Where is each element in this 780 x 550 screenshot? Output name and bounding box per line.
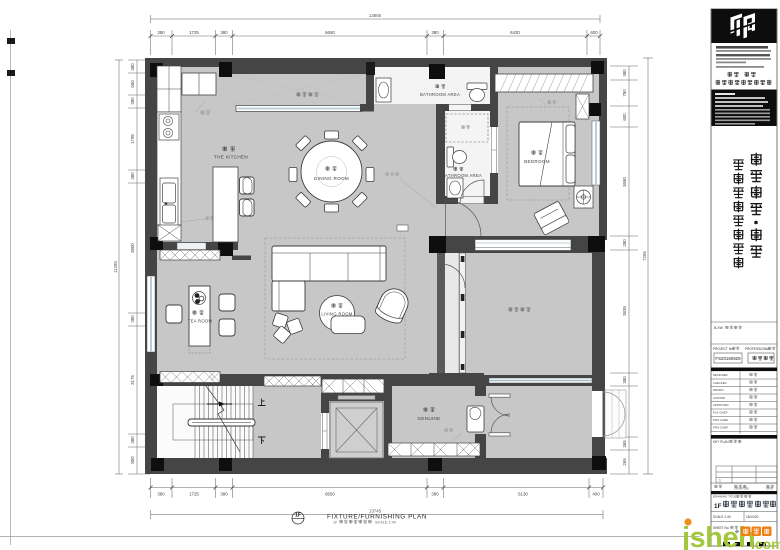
svg-text:DRAWN: DRAWN <box>713 388 723 392</box>
svg-text:380: 380 <box>130 97 135 105</box>
svg-text:265: 265 <box>622 458 627 466</box>
svg-text:600: 600 <box>622 113 627 121</box>
svg-text:1725: 1725 <box>189 492 199 497</box>
svg-text:280: 280 <box>622 239 627 247</box>
svg-text:1F: 1F <box>333 521 338 525</box>
svg-text:CHECKED: CHECKED <box>713 381 727 385</box>
svg-text:APPROVED: APPROVED <box>713 403 729 407</box>
svg-text:380: 380 <box>220 492 228 497</box>
svg-text:380: 380 <box>431 30 439 35</box>
svg-text:7285: 7285 <box>642 251 647 261</box>
svg-text:365: 365 <box>622 440 627 448</box>
svg-text:400: 400 <box>592 492 600 497</box>
svg-text:1725: 1725 <box>189 30 199 35</box>
svg-text:16/10/20: 16/10/20 <box>746 515 759 519</box>
svg-text:380: 380 <box>130 172 135 180</box>
svg-text:BEDROOM: BEDROOM <box>524 159 550 164</box>
svg-text:FIXTURE/FURNISHING PLAN: FIXTURE/FURNISHING PLAN <box>327 514 427 521</box>
svg-text:1795: 1795 <box>130 134 135 144</box>
svg-text:13865: 13865 <box>369 13 382 18</box>
svg-text:380: 380 <box>157 492 165 497</box>
svg-text:380: 380 <box>220 30 228 35</box>
svg-text:LIVING ROOM: LIVING ROOM <box>321 312 352 317</box>
svg-text:3650: 3650 <box>622 177 627 187</box>
svg-text:DINING ROOM: DINING ROOM <box>314 176 349 181</box>
svg-text:SCALE 1:40: SCALE 1:40 <box>375 521 396 525</box>
svg-text:TEA ROOM: TEA ROOM <box>188 319 213 324</box>
svg-text:1: 1 <box>719 479 721 483</box>
svg-text:GENUINE: GENUINE <box>417 416 440 421</box>
svg-text:380: 380 <box>130 63 135 71</box>
svg-text:KEY PLAN: KEY PLAN <box>713 440 729 444</box>
svg-text:380: 380 <box>622 376 627 384</box>
svg-text:800: 800 <box>130 456 135 464</box>
svg-text:1F: 1F <box>714 503 722 510</box>
svg-text:11280: 11280 <box>113 261 118 273</box>
svg-text:PROFESSIONAL: PROFESSIONAL <box>745 347 770 351</box>
svg-text:6430: 6430 <box>510 30 520 35</box>
svg-text:380: 380 <box>622 69 627 77</box>
svg-text:380: 380 <box>130 315 135 323</box>
svg-text:AUDITED: AUDITED <box>713 396 725 400</box>
svg-text:380: 380 <box>157 30 165 35</box>
svg-text:PROJECT No.: PROJECT No. <box>713 347 734 351</box>
svg-text:DESIGNED: DESIGNED <box>713 373 728 377</box>
svg-text:380: 380 <box>431 492 439 497</box>
svg-text:PRO-CHIEF: PRO-CHIEF <box>713 426 729 430</box>
svg-text:6650: 6650 <box>325 30 335 35</box>
svg-text:BATHROOM AREA: BATHROOM AREA <box>442 173 482 178</box>
svg-text:DRAWING TITLE: DRAWING TITLE <box>713 495 736 499</box>
svg-text:3175: 3175 <box>130 375 135 385</box>
svg-text:PRO-CHIEF: PRO-CHIEF <box>713 418 729 422</box>
svg-text:3800: 3800 <box>130 243 135 253</box>
svg-text:PLS-CHIEF: PLS-CHIEF <box>713 411 728 415</box>
svg-text:380: 380 <box>130 436 135 444</box>
svg-text:SCALE 1:40: SCALE 1:40 <box>713 515 731 519</box>
svg-text:1F: 1F <box>295 513 301 519</box>
svg-text:750: 750 <box>622 89 627 97</box>
svg-text:650: 650 <box>130 80 135 88</box>
svg-text:.com: .com <box>751 536 780 550</box>
svg-text:FS20160929: FS20160929 <box>715 356 741 361</box>
svg-text:SIGNATURE: SIGNATURE <box>734 486 749 490</box>
svg-text:THE KITCHEN: THE KITCHEN <box>214 155 248 160</box>
svg-text:6650: 6650 <box>325 492 335 497</box>
svg-text:DATE: DATE <box>766 486 773 490</box>
svg-text:600: 600 <box>590 30 598 35</box>
svg-text:BATHROOM AREA: BATHROOM AREA <box>420 92 460 97</box>
svg-text:B-XW: B-XW <box>714 326 724 330</box>
svg-text:3835: 3835 <box>622 306 627 316</box>
svg-text:6130: 6130 <box>518 492 528 497</box>
